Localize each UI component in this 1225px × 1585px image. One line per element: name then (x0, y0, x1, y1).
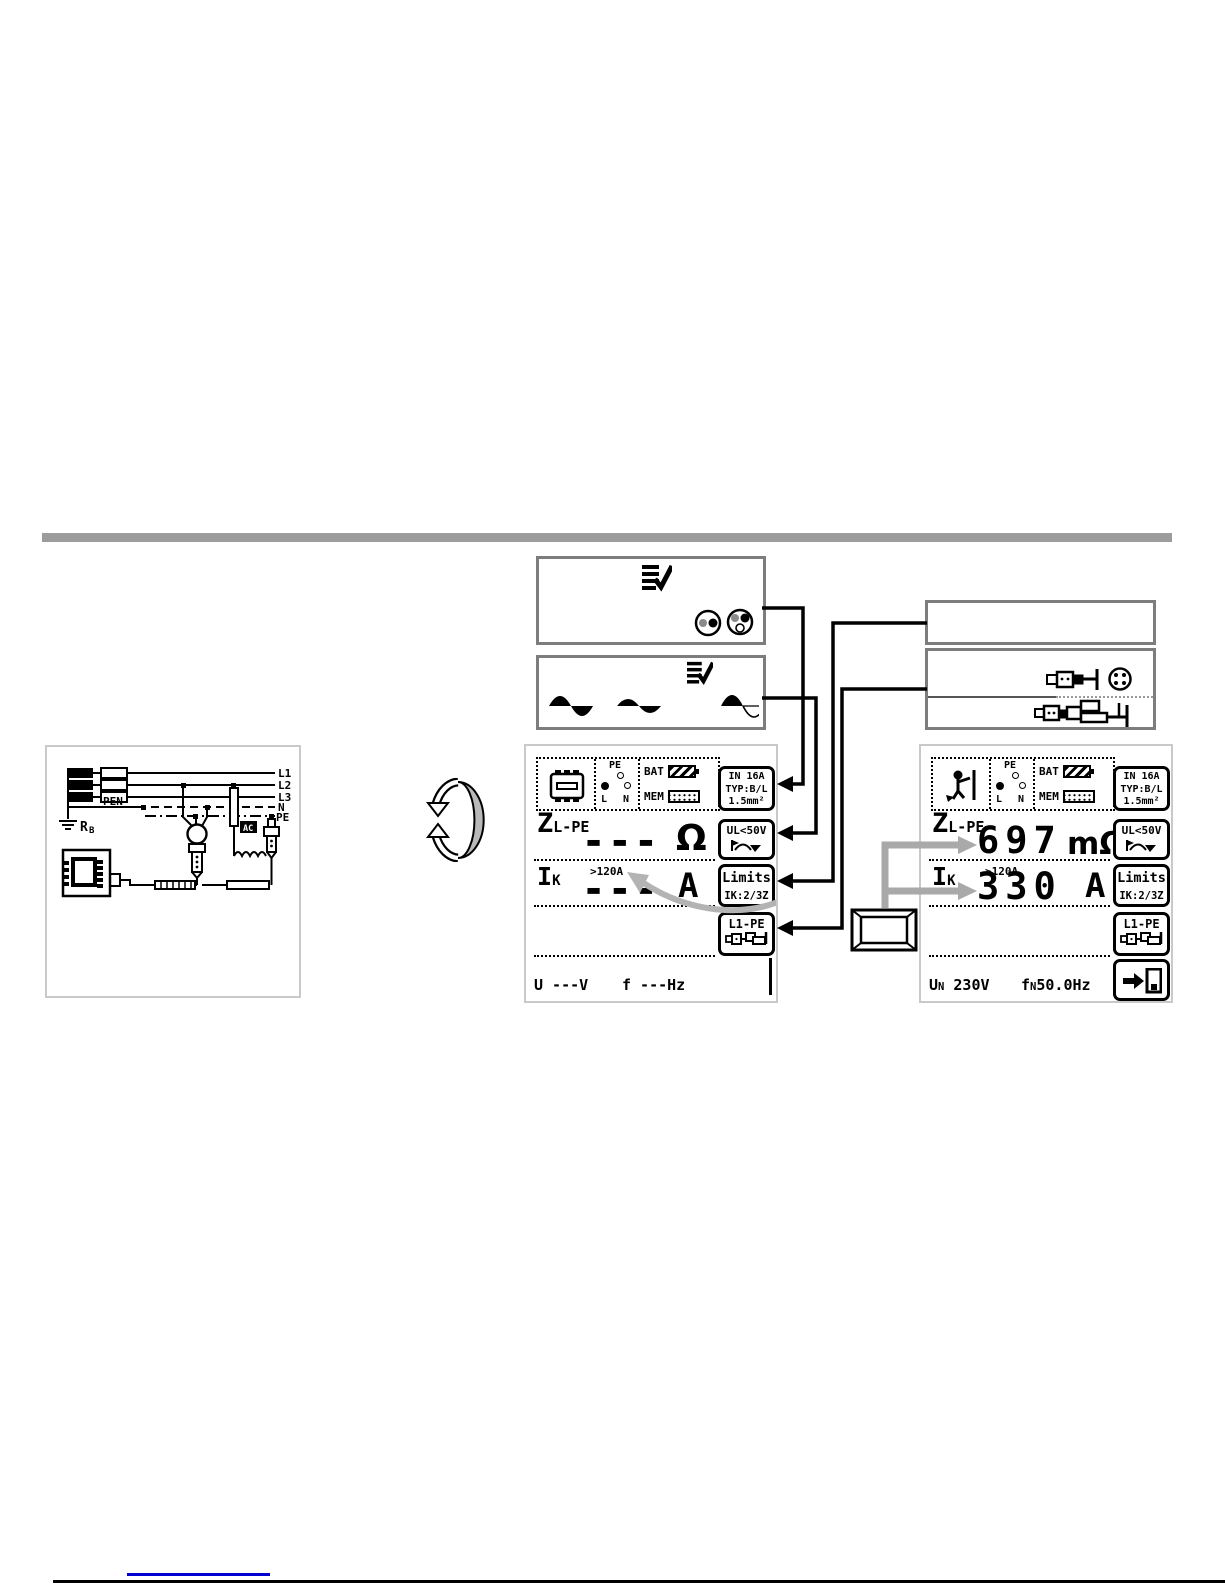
mem-label: MEM (1039, 790, 1059, 803)
pe-indicator: PE (609, 760, 621, 771)
softkey-save[interactable] (1113, 959, 1170, 1001)
n-terminal-dot (624, 782, 631, 789)
ik-range: >120A (590, 865, 623, 878)
ik-label: IK (537, 862, 561, 891)
checklist-icon (642, 563, 672, 595)
softkey-measurement-type[interactable]: L1-PE (1113, 912, 1170, 956)
flow-box-socket-test (536, 556, 766, 645)
n-indicator: N (1018, 794, 1024, 805)
rotate-selector-icon (421, 778, 495, 862)
nominal-voltage-readout: UN 230V (929, 976, 990, 994)
n-terminal-dot (1019, 782, 1026, 789)
status-cell-terminals: PE L N (596, 759, 640, 809)
save-to-memory-icon (1122, 968, 1162, 994)
l-indicator: L (601, 794, 607, 805)
l-indicator: L (996, 794, 1002, 805)
pe-indicator: PE (1004, 760, 1016, 771)
softkey-nominal-current[interactable]: IN 16ATYP:B/L1.5mm² (1113, 766, 1170, 811)
softkey-ul-limit[interactable]: UL<50V (718, 819, 775, 860)
battery-icon (1063, 765, 1091, 778)
waveform-limit-icon (728, 837, 766, 853)
bat-label: BAT (1039, 765, 1059, 778)
ik-unit: A (678, 866, 698, 906)
ik-unit: A (1085, 866, 1105, 906)
flow-box-waveforms (536, 655, 766, 730)
status-cell-bat-mem: BAT MEM (640, 759, 718, 809)
pe-terminal-dot (1012, 772, 1019, 779)
person-earth-rod-icon (943, 768, 983, 802)
socket-polarity-icons (693, 608, 757, 638)
battery-icon (668, 765, 696, 778)
separator (534, 955, 715, 957)
separator (929, 859, 1110, 861)
ac-label: AC (243, 824, 253, 834)
status-bar: PE L N BAT MEM (536, 757, 720, 811)
start-key-icon[interactable] (850, 908, 918, 952)
softkey-nominal-current[interactable]: IN 16ATYP:B/L1.5mm² (718, 766, 775, 811)
flow-box-limits (925, 600, 1156, 645)
bat-label: BAT (644, 765, 664, 778)
lcd-screen-result: PE L N BAT MEM ZL-PE 697 mΩ IK >120A 330… (919, 744, 1173, 1003)
manual-page: AC L1 L2 L3 N PE PEN R B (0, 0, 1225, 1585)
probe-connection-icon (725, 931, 769, 945)
separator (929, 955, 1110, 957)
waveform-limit-icon (1123, 837, 1161, 853)
zlpe-value: ▬ ▬ ▬ (586, 832, 657, 851)
coupler-plug-icon (1033, 697, 1143, 729)
pe-label: PE (276, 811, 289, 824)
tn-network-measurement-diagram: AC L1 L2 L3 N PE PEN R B (47, 747, 299, 996)
memory-icon (1063, 790, 1095, 803)
voltage-readout: U ---V (534, 976, 588, 994)
softkey-measurement-type[interactable]: L1-PE (718, 912, 775, 956)
softkey-ul-limit[interactable]: UL<50V (1113, 819, 1170, 860)
separator (534, 905, 715, 907)
separator (929, 905, 1110, 907)
l-terminal-dot (996, 782, 1004, 790)
circuit-diagram-panel: AC L1 L2 L3 N PE PEN R B (45, 745, 301, 998)
zlpe-label: ZL-PE (537, 808, 589, 839)
waveform-icons (543, 686, 759, 726)
pen-label: PEN (103, 795, 123, 808)
status-cell-bat-mem: BAT MEM (1035, 759, 1113, 809)
probe-plug-and-socket-icon (1045, 666, 1145, 693)
footer-link-underline[interactable] (127, 1573, 270, 1576)
cursor-mark (769, 958, 772, 995)
memory-icon (668, 790, 700, 803)
pe-terminal-dot (617, 772, 624, 779)
zlpe-value: 697 (977, 822, 1062, 859)
plug-adapter-icon (546, 769, 588, 803)
section-divider-bar (42, 533, 1172, 542)
mem-label: MEM (644, 790, 664, 803)
softkey-limits[interactable]: LimitsIK:2/3Z (718, 864, 775, 907)
checklist-icon (687, 660, 713, 688)
probe-connection-icon (1120, 931, 1164, 945)
rb-sub-label: B (89, 826, 95, 836)
zlpe-unit: Ω (676, 818, 707, 859)
ik-value: ▬ ▬ ▬ (586, 880, 657, 899)
status-cell-earthing (933, 759, 991, 809)
nominal-frequency-readout: fN50.0Hz (1021, 976, 1091, 994)
frequency-readout: f ---Hz (622, 976, 685, 994)
ik-label: IK (932, 862, 956, 891)
status-cell-terminals: PE L N (991, 759, 1035, 809)
l-terminal-dot (601, 782, 609, 790)
rb-label: R (80, 820, 88, 835)
softkey-limits[interactable]: LimitsIK:2/3Z (1113, 864, 1170, 907)
status-cell-adapter (538, 759, 596, 809)
n-indicator: N (623, 794, 629, 805)
separator (534, 859, 715, 861)
flow-box-probe-connection (925, 648, 1156, 730)
page-bottom-rule (53, 1580, 1225, 1583)
arrowheads (777, 776, 793, 936)
status-bar: PE L N BAT MEM (931, 757, 1115, 811)
lcd-screen-initial: PE L N BAT MEM ZL-PE ▬ ▬ ▬ Ω IK >120A ▬ … (524, 744, 778, 1003)
ik-value: 330 (977, 868, 1062, 905)
